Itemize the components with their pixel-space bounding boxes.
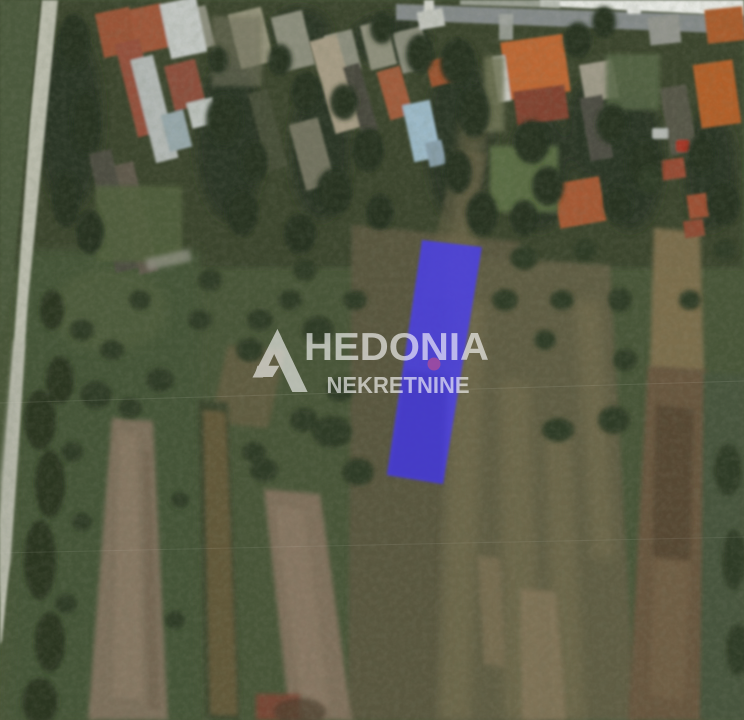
- svg-text:HEDONIA: HEDONIA: [304, 326, 489, 369]
- svg-text:NEKRETNINE: NEKRETNINE: [327, 372, 470, 398]
